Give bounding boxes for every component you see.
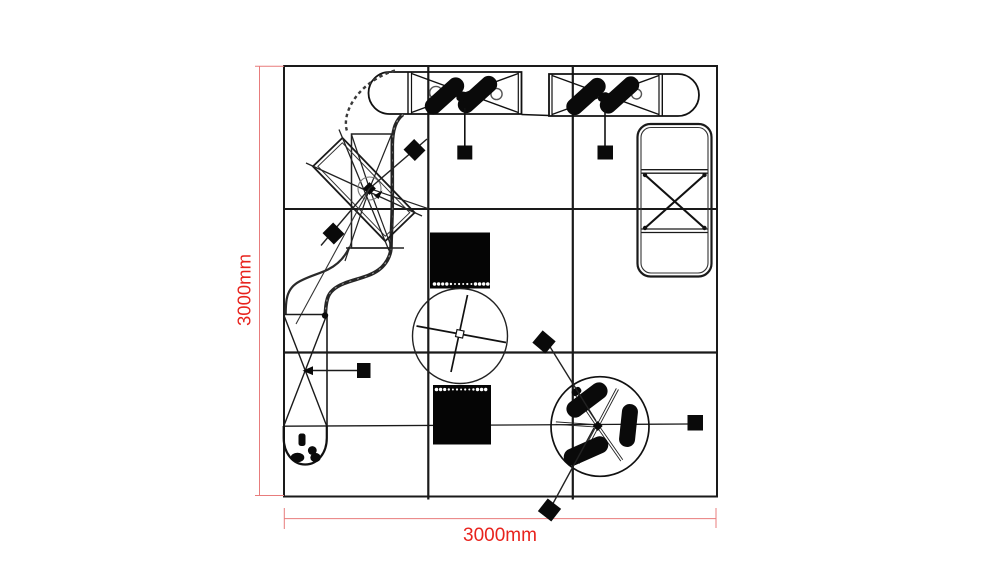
svg-text:3000mm: 3000mm (233, 254, 254, 326)
svg-text:3000mm: 3000mm (463, 525, 537, 546)
